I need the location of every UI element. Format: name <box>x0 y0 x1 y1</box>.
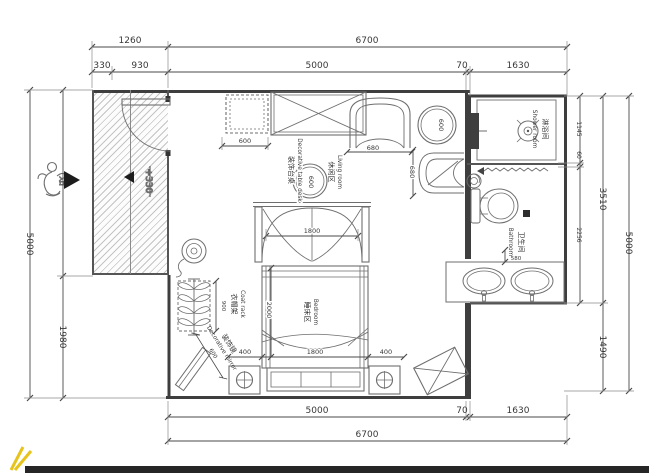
console-x-lines <box>271 92 366 135</box>
decorative-mirror <box>175 347 210 390</box>
dim-right-3510: 3510 <box>597 188 607 211</box>
dim-right-1490: 1490 <box>597 336 607 359</box>
dim-top-930: 930 <box>131 61 148 71</box>
nightstand-right <box>369 366 400 394</box>
cabinet-dashed <box>226 95 268 133</box>
toilet <box>471 189 518 223</box>
deco-table-label-zh: 装饰台桌 <box>287 156 296 184</box>
living-room-label-en: Living room <box>336 155 342 189</box>
dim-right-60: 60 <box>575 151 582 159</box>
floor-plan-canvas: 入口 +330 <box>0 0 649 473</box>
bed-area <box>229 203 468 395</box>
floor-drain <box>523 210 530 217</box>
dim-bottom-1630: 1630 <box>507 406 530 416</box>
dim-top-6700: 6700 <box>356 36 379 46</box>
round-table <box>418 106 456 144</box>
door-swing-arc <box>122 103 170 151</box>
armchair-left <box>419 153 464 193</box>
dim-deco-table-600: 600 <box>307 176 315 188</box>
dim-chair-b-680: 680 <box>408 166 416 178</box>
dim-canopy-1800: 1800 <box>304 227 321 235</box>
bedroom-label-zh: 睡床区 <box>303 302 312 323</box>
living-area <box>226 92 464 198</box>
dim-bed-2000: 2000 <box>265 302 273 319</box>
shower-room-label-zh: 淋浴间 <box>541 119 550 140</box>
bathroom-label-en: Bathroom <box>507 228 513 257</box>
shower-fixture <box>471 113 479 149</box>
dim-top-330: 330 <box>93 61 110 71</box>
armchair-down <box>350 98 410 148</box>
dim-right-1145: 1145 <box>575 121 582 136</box>
dim-bottom-6700: 6700 <box>356 430 379 440</box>
dim-bottom-5000: 5000 <box>306 406 329 416</box>
cabinet-dashed-inner <box>230 99 264 129</box>
dim-top-1260: 1260 <box>119 36 142 46</box>
dim-right-5000: 5000 <box>623 232 633 255</box>
dim-bed-1800: 1800 <box>307 348 324 356</box>
glass-partition-zigzag <box>484 168 548 171</box>
level-arrow-icon <box>124 171 134 183</box>
dim-cabinet-600: 600 <box>239 137 251 145</box>
floor-level-label: +330 <box>143 169 153 194</box>
vanity <box>446 262 564 302</box>
dim-chair-a-680: 680 <box>367 144 379 152</box>
round-table-inner <box>421 109 453 141</box>
dim-left-5000: 5000 <box>24 233 34 256</box>
dim-left-1980: 1980 <box>57 326 67 349</box>
entry-arrow-icon <box>64 171 80 189</box>
crossed-item <box>414 347 469 395</box>
dim-right-2256: 2256 <box>575 227 582 242</box>
dim-vanity-580: 580 <box>511 256 522 262</box>
door-leaf <box>122 99 170 105</box>
living-room-label-zh: 休闲区 <box>327 162 336 183</box>
bedroom-label-en: Bedroom <box>312 299 318 326</box>
mirror-label-600: 600 <box>207 348 218 361</box>
coat-rack <box>178 279 210 335</box>
floor-plan: 入口 +330 <box>0 0 649 473</box>
dim-round-table-600: 600 <box>437 119 445 131</box>
dim-coat-900: 900 <box>220 301 226 312</box>
bed-bench <box>267 368 364 391</box>
dim-bed-400r: 400 <box>380 348 392 356</box>
shower-room-label-en: Shower room <box>531 110 537 149</box>
bottom-bar <box>25 466 649 473</box>
deco-table-label-en: Decorative table desk <box>296 138 302 202</box>
dim-bottom-70: 70 <box>456 406 468 416</box>
coat-rack-label-en: Coat rack <box>239 290 245 318</box>
dim-top-5000: 5000 <box>306 61 329 71</box>
coat-area <box>175 239 210 391</box>
entry-group: 入口 +330 <box>38 99 170 197</box>
coil-symbol <box>176 239 206 277</box>
bathroom-label-zh: 卫生间 <box>517 232 526 253</box>
dim-top-70: 70 <box>456 61 468 71</box>
dim-top-1630: 1630 <box>507 61 530 71</box>
coat-rack-label-zh: 衣帽架 <box>230 294 239 315</box>
partition-arrow <box>477 167 484 175</box>
dim-bed-400l: 400 <box>239 348 251 356</box>
